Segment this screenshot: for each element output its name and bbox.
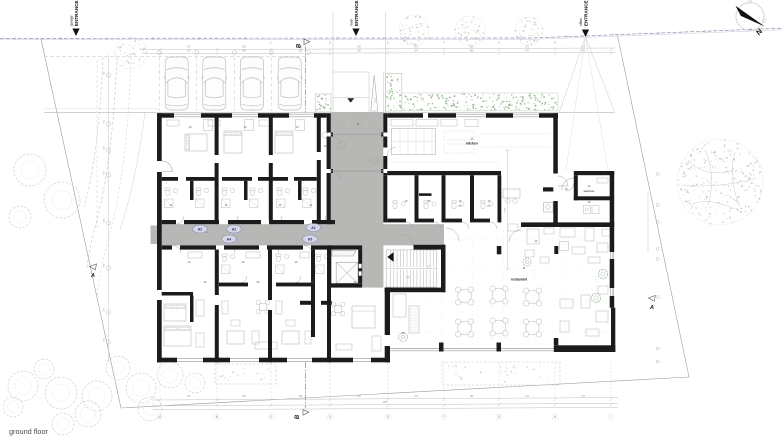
svg-text:11: 11 [225,203,228,207]
svg-text:B: B [297,43,303,48]
svg-text:garage: garage [70,15,74,26]
svg-text:11: 11 [170,203,173,207]
svg-text:main: main [350,19,354,26]
svg-text:ENTRANCE: ENTRANCE [74,0,79,26]
svg-text:20: 20 [354,280,357,284]
svg-text:20: 20 [405,199,408,203]
svg-text:23: 23 [428,199,431,203]
svg-text:11: 11 [523,266,526,270]
svg-text:16: 16 [488,199,491,203]
svg-text:2856: 2856 [382,402,388,404]
svg-text:G: G [498,41,500,45]
svg-text:16: 16 [459,199,462,203]
svg-text:A2: A2 [198,227,203,231]
svg-text:ENTRANCE: ENTRANCE [354,0,359,26]
svg-text:A: A [649,305,654,311]
svg-text:16: 16 [402,331,405,335]
svg-text:washroom: washroom [583,190,594,193]
svg-text:ground floor: ground floor [9,427,49,436]
svg-text:A1: A1 [311,226,316,230]
svg-text:A4: A4 [227,237,232,241]
svg-text:13: 13 [188,260,191,264]
svg-text:16: 16 [588,200,591,204]
svg-text:A: A [90,273,95,279]
svg-text:15: 15 [565,187,568,191]
svg-text:kitchen: kitchen [466,142,478,146]
svg-text:ENTRANCE: ENTRANCE [583,0,588,26]
svg-text:11: 11 [279,203,282,207]
svg-text:20: 20 [311,280,314,284]
svg-text:C: C [270,41,272,45]
svg-text:11: 11 [471,137,474,141]
svg-text:A5: A5 [308,237,313,241]
svg-text:ramp: ramp [374,97,377,103]
svg-text:10: 10 [295,260,298,264]
svg-text:WC: WC [487,206,491,208]
svg-text:B: B [295,414,301,419]
svg-text:D: D [329,41,331,45]
svg-text:11: 11 [310,203,313,207]
svg-text:F: F [443,415,445,419]
svg-text:20: 20 [204,280,207,284]
svg-text:13: 13 [296,125,299,129]
svg-text:A2: A2 [232,227,237,231]
svg-text:10: 10 [242,260,245,264]
svg-text:I: I [611,415,612,419]
svg-text:13: 13 [189,125,192,129]
svg-text:20: 20 [257,280,260,284]
svg-text:11: 11 [357,122,360,126]
svg-text:WC: WC [458,206,462,208]
svg-text:F: F [443,41,445,45]
svg-text:5585: 5585 [505,207,507,213]
svg-text:E: E [387,415,389,419]
svg-text:13: 13 [244,125,247,129]
svg-text:E: E [387,41,389,45]
svg-text:restaurant: restaurant [511,278,528,282]
svg-text:14: 14 [324,144,327,148]
svg-text:H: H [554,41,556,45]
svg-text:B: B [216,415,218,419]
svg-text:office: office [579,18,583,26]
